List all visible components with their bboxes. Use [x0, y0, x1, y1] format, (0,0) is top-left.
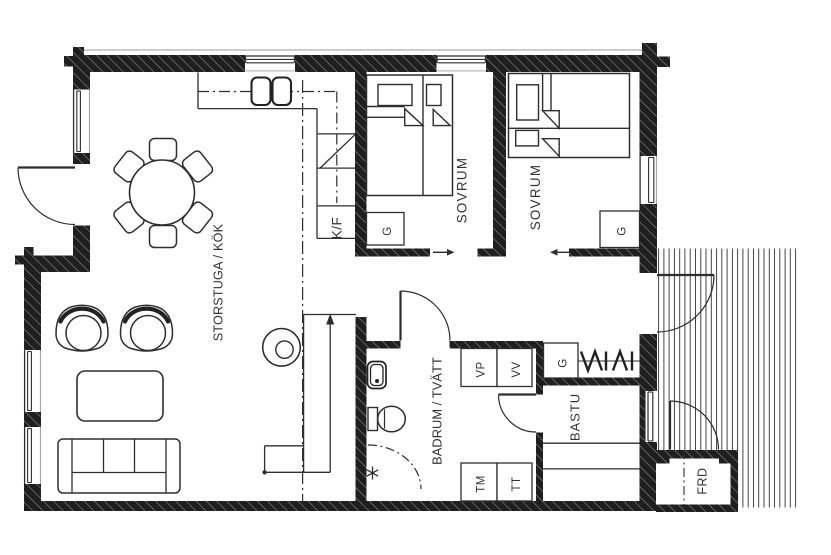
svg-text:SOVRUM: SOVRUM: [528, 164, 543, 231]
svg-text:SOVRUM: SOVRUM: [455, 157, 470, 224]
svg-text:G: G: [617, 226, 629, 235]
svg-text:K/F: K/F: [330, 217, 345, 240]
svg-text:STORSTUGA / KÖK: STORSTUGA / KÖK: [212, 223, 226, 341]
svg-text:TM: TM: [476, 475, 488, 493]
svg-text:G: G: [382, 226, 394, 235]
svg-text:FRD: FRD: [696, 467, 710, 494]
svg-text:BASTU: BASTU: [568, 393, 583, 441]
svg-text:VP: VP: [476, 361, 488, 377]
svg-text:BADRUM / TVÄTT: BADRUM / TVÄTT: [430, 357, 445, 465]
svg-text:VV: VV: [511, 361, 523, 377]
svg-text:TT: TT: [511, 476, 523, 491]
svg-text:G: G: [558, 358, 570, 367]
